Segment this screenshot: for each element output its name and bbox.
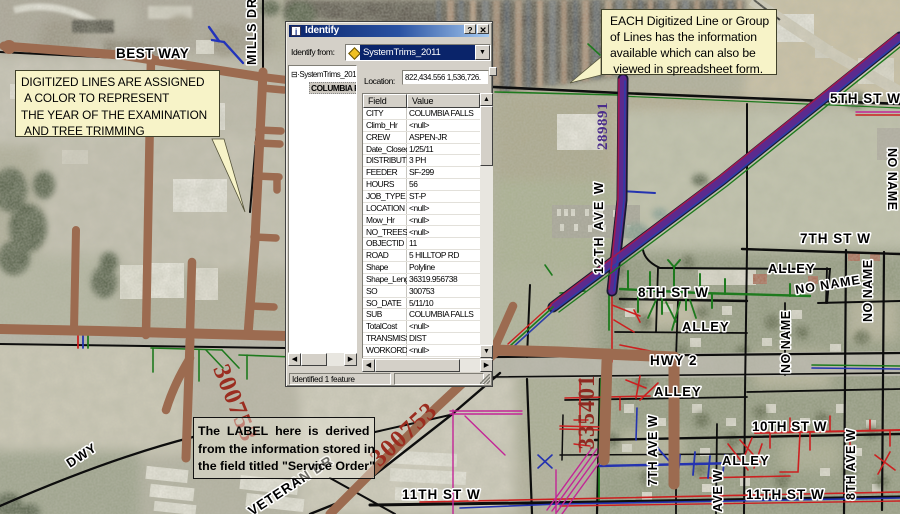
svg-text:AVE W: AVE W bbox=[711, 469, 725, 512]
svg-text:ALLEY: ALLEY bbox=[682, 319, 730, 334]
svg-text:7TH ST W: 7TH ST W bbox=[800, 231, 871, 246]
svg-text:10TH ST W: 10TH ST W bbox=[752, 419, 827, 434]
svg-text:MILLS DR: MILLS DR bbox=[245, 0, 259, 65]
svg-text:11TH ST W: 11TH ST W bbox=[402, 487, 481, 502]
svg-text:8TH AVE W: 8TH AVE W bbox=[844, 429, 858, 500]
svg-text:ALLEY: ALLEY bbox=[768, 261, 816, 276]
svg-text:NO NAME: NO NAME bbox=[779, 310, 793, 373]
svg-text:8TH ST W: 8TH ST W bbox=[638, 285, 709, 300]
svg-text:335401: 335401 bbox=[574, 375, 599, 450]
svg-text:12TH AVE W: 12TH AVE W bbox=[592, 180, 606, 274]
svg-text:ALLEY: ALLEY bbox=[654, 384, 702, 399]
svg-text:5TH ST W: 5TH ST W bbox=[830, 91, 900, 106]
svg-text:7TH AVE W: 7TH AVE W bbox=[646, 415, 660, 486]
svg-text:11TH ST W: 11TH ST W bbox=[746, 487, 825, 502]
svg-text:HWY 2: HWY 2 bbox=[650, 353, 698, 368]
svg-text:NO NAME: NO NAME bbox=[861, 259, 875, 322]
svg-text:ALLEY: ALLEY bbox=[722, 453, 770, 468]
svg-text:NO NAME: NO NAME bbox=[885, 148, 899, 211]
svg-text:BEST WAY: BEST WAY bbox=[116, 46, 189, 61]
svg-text:289891: 289891 bbox=[595, 102, 611, 150]
